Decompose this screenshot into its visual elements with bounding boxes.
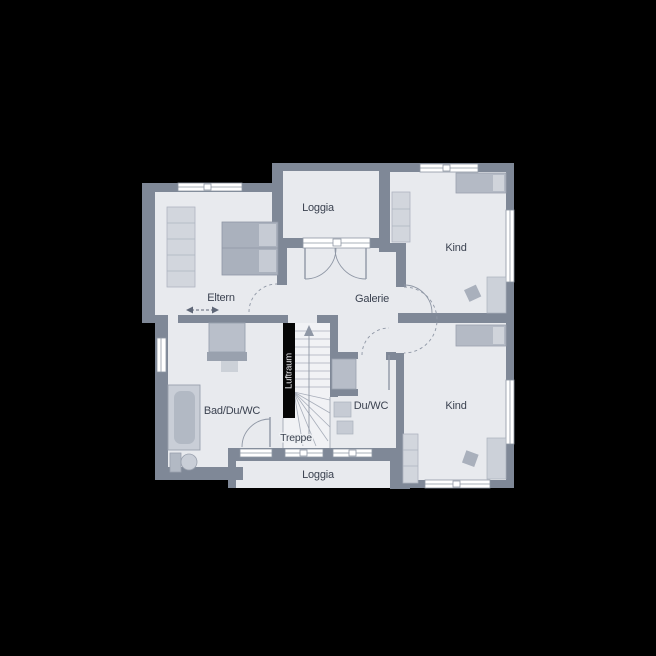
room-label-treppe: Treppe [280,432,312,444]
window-loggia-2 [285,449,323,457]
window-right-lower [506,380,514,444]
french-door-loggia-top [303,238,370,248]
shower-duwc [332,359,356,389]
bed-kind-bottom [456,325,506,346]
window-loggia-3 [333,449,372,457]
window-kind-bottom [425,480,490,488]
bed-kind-top [456,173,506,193]
window-kind-top [420,164,478,172]
wardrobe-eltern [167,207,195,287]
room-label-luftraum: Luftraum [284,353,295,389]
floor-plan-canvas: Loggia Kind Eltern Galerie Bad/Du/WC Du/… [0,0,656,656]
window-eltern-top [178,183,242,191]
room-label-loggia-top: Loggia [302,202,335,214]
room-label-galerie: Galerie [355,293,389,305]
room-label-kind-bottom: Kind [445,400,466,412]
room-label-loggia-bottom: Loggia [302,469,335,481]
window-right-upper [506,210,514,282]
window-bad-left [157,338,166,372]
bed-eltern [222,222,278,275]
room-label-kind-top: Kind [445,242,466,254]
room-label-bad: Bad/Du/WC [204,405,261,417]
floor-plan: Loggia Kind Eltern Galerie Bad/Du/WC Du/… [0,0,656,656]
wardrobe-kind-top [392,192,410,242]
bathtub [168,385,200,450]
window-loggia-1 [240,449,272,457]
room-label-eltern: Eltern [207,292,235,304]
room-label-duwc: Du/WC [354,400,389,412]
wardrobe-kind-bottom [403,434,418,483]
